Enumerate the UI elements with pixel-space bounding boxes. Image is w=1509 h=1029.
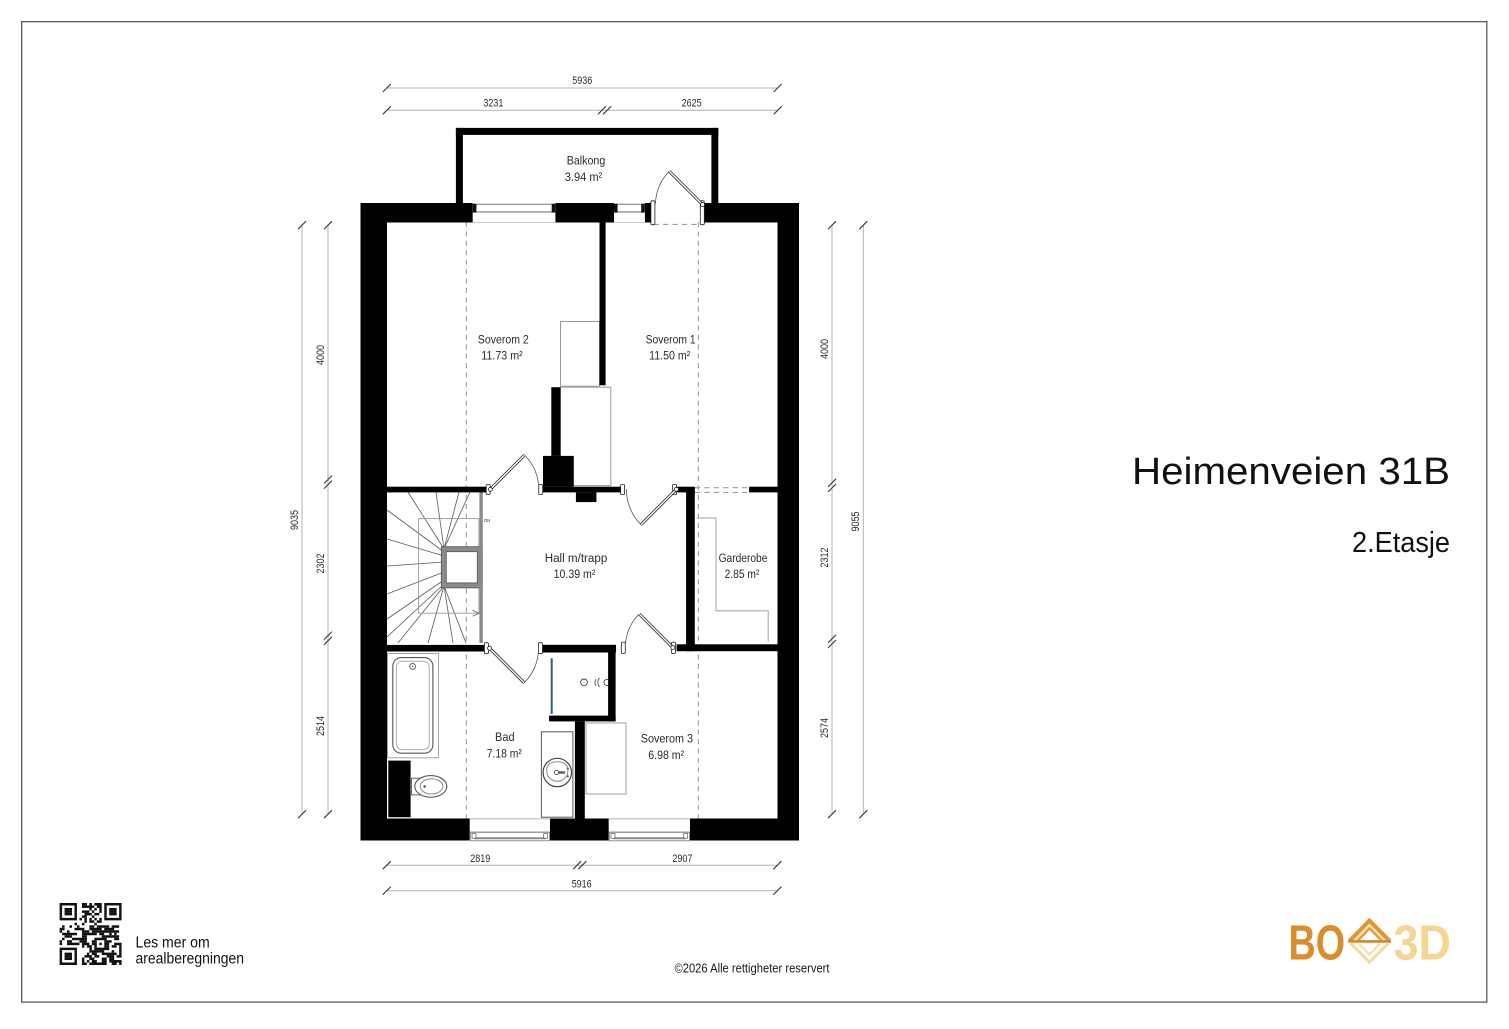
svg-text:2625: 2625 — [682, 98, 702, 110]
svg-text:3.94 m²: 3.94 m² — [565, 170, 603, 184]
svg-text:Garderobe: Garderobe — [719, 551, 768, 565]
svg-text:3D: 3D — [1394, 917, 1452, 971]
svg-text:3231: 3231 — [483, 98, 503, 110]
svg-text:©2026 Alle rettigheter reserve: ©2026 Alle rettigheter reservert — [675, 960, 830, 975]
svg-text:Les mer om: Les mer om — [136, 935, 210, 952]
svg-text:11.50 m²: 11.50 m² — [649, 348, 690, 362]
svg-text:9035: 9035 — [289, 510, 301, 530]
svg-text:Balkong: Balkong — [567, 154, 606, 168]
svg-text:DN: DN — [484, 518, 490, 523]
svg-text:BO: BO — [1289, 917, 1346, 971]
svg-text:2312: 2312 — [819, 548, 831, 568]
svg-text:2574: 2574 — [819, 718, 831, 738]
svg-text:Soverom 1: Soverom 1 — [646, 332, 696, 346]
svg-text:2.Etasje: 2.Etasje — [1352, 526, 1450, 558]
svg-text:Hall m/trapp: Hall m/trapp — [545, 551, 608, 565]
svg-text:2514: 2514 — [315, 716, 327, 736]
svg-text:Heimenveien 31B: Heimenveien 31B — [1132, 451, 1450, 493]
svg-text:4000: 4000 — [315, 345, 327, 365]
svg-text:6.98 m²: 6.98 m² — [648, 748, 684, 762]
svg-text:2302: 2302 — [315, 554, 327, 574]
svg-text:4000: 4000 — [819, 339, 831, 359]
svg-text:11.73 m²: 11.73 m² — [481, 348, 522, 362]
svg-text:2819: 2819 — [470, 853, 490, 865]
svg-text:Soverom 2: Soverom 2 — [478, 332, 529, 346]
svg-text:5936: 5936 — [572, 75, 592, 87]
svg-text:9055: 9055 — [850, 512, 862, 532]
svg-text:5916: 5916 — [572, 879, 592, 891]
svg-text:arealberegningen: arealberegningen — [136, 951, 245, 968]
svg-text:Bad: Bad — [495, 730, 515, 744]
svg-text:2907: 2907 — [672, 853, 692, 865]
svg-text:10.39 m²: 10.39 m² — [554, 567, 596, 581]
svg-text:7.18 m²: 7.18 m² — [487, 746, 522, 760]
svg-text:2.85 m²: 2.85 m² — [725, 567, 760, 581]
svg-text:Soverom 3: Soverom 3 — [641, 731, 693, 745]
